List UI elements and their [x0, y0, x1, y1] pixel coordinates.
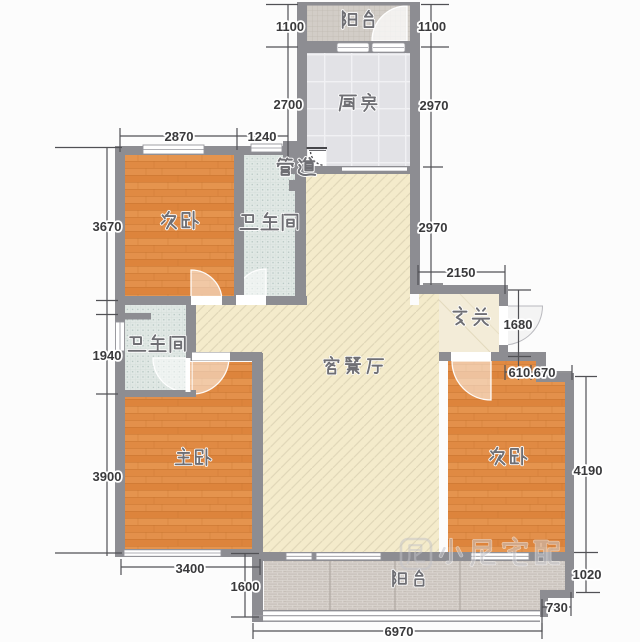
svg-text:730: 730: [546, 600, 568, 615]
svg-text:2700: 2700: [274, 97, 303, 112]
svg-text:1240: 1240: [248, 129, 277, 144]
svg-text:2970: 2970: [420, 98, 449, 113]
svg-text:1600: 1600: [231, 579, 260, 594]
svg-text:6970: 6970: [385, 624, 414, 639]
svg-text:4190: 4190: [574, 463, 603, 478]
svg-text:2150: 2150: [447, 265, 476, 280]
svg-text:1680: 1680: [504, 317, 533, 332]
svg-text:1100: 1100: [418, 19, 446, 34]
svg-text:3400: 3400: [176, 561, 205, 576]
svg-text:2970: 2970: [419, 220, 448, 235]
svg-text:1940: 1940: [93, 348, 122, 363]
svg-text:1100: 1100: [276, 19, 304, 34]
svg-text:3900: 3900: [93, 469, 122, 484]
svg-text:610.670: 610.670: [509, 365, 556, 380]
svg-text:3670: 3670: [93, 219, 122, 234]
svg-text:1020: 1020: [573, 567, 602, 582]
svg-text:2870: 2870: [165, 129, 194, 144]
